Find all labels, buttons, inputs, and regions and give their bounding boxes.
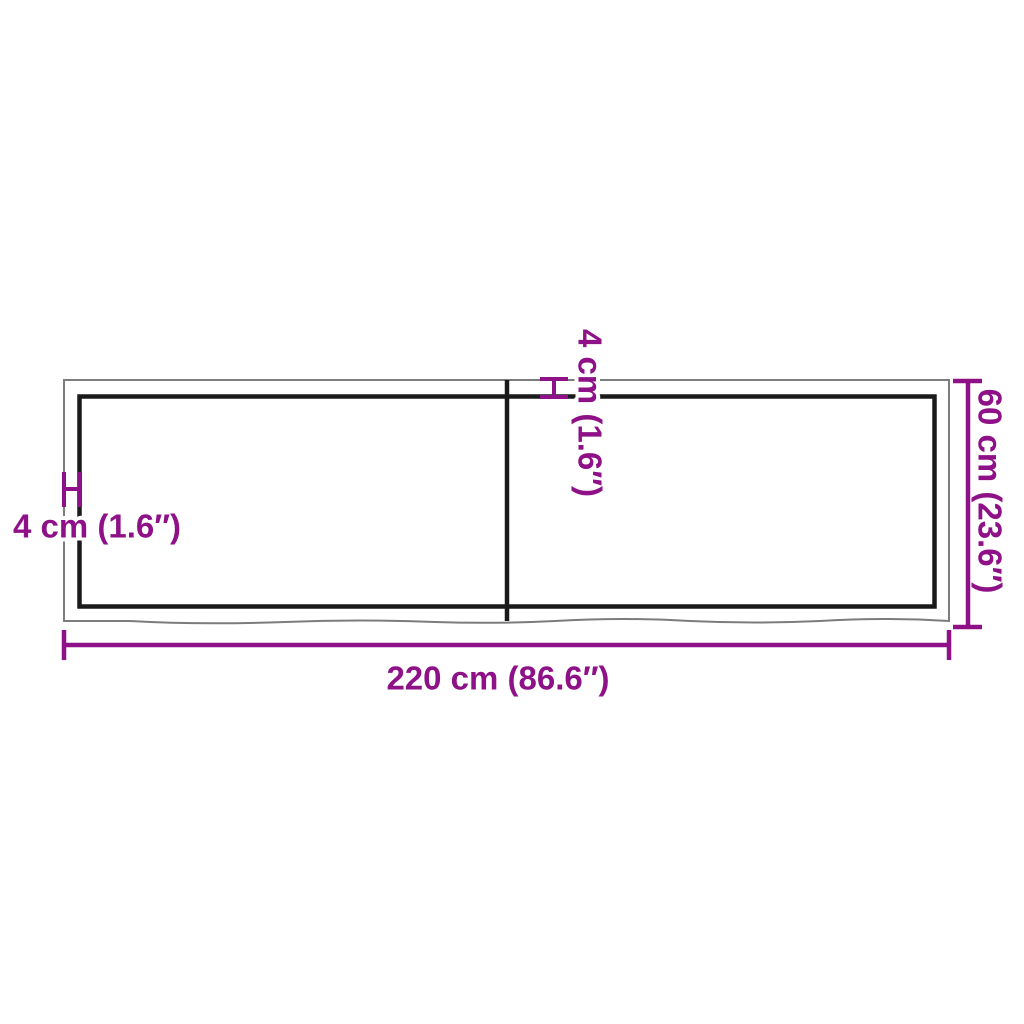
thickness-marker-center bbox=[540, 377, 568, 399]
dimension-diagram: 4 cm (1.6″) 4 cm (1.6″) 60 cm (23.6″) 22… bbox=[0, 0, 1024, 1024]
depth-label: 60 cm (23.6″) bbox=[974, 389, 1007, 594]
width-label: 220 cm (86.6″) bbox=[386, 662, 609, 695]
thickness-marker-left bbox=[62, 472, 82, 507]
thickness-label-left: 4 cm (1.6″) bbox=[13, 510, 181, 543]
thickness-label-center: 4 cm (1.6″) bbox=[574, 329, 607, 497]
width-dimension-line bbox=[64, 630, 949, 660]
